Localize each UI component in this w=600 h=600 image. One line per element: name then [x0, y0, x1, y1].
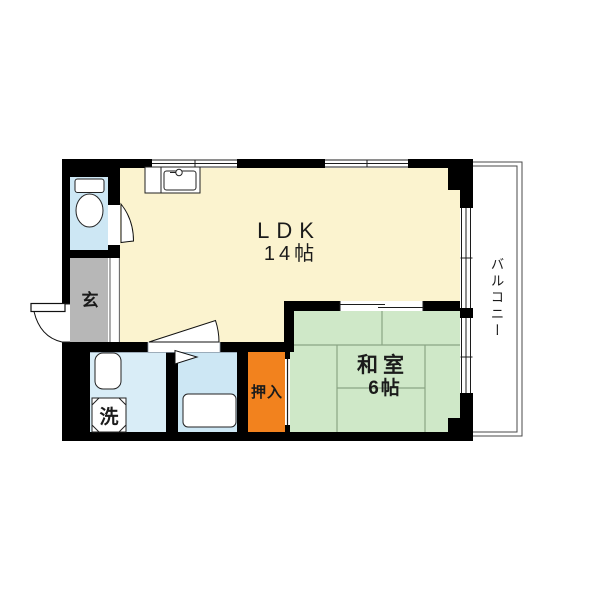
- wall: [62, 342, 90, 441]
- ldk-label: LDK: [257, 218, 321, 243]
- floor-plan-page: LDK 14帖 和室 6帖 押入 玄 洗 バルコニー: [0, 0, 600, 600]
- wall: [62, 432, 473, 441]
- wall: [284, 301, 340, 311]
- wall: [90, 342, 148, 352]
- entrance-step: [108, 258, 120, 342]
- wall: [237, 342, 248, 441]
- laundry-label: 洗: [99, 405, 118, 428]
- wall: [460, 159, 473, 208]
- washroom-opening: [148, 342, 220, 352]
- faucet-icon: [176, 169, 182, 175]
- balcony-label: バルコニー: [489, 257, 504, 340]
- floor-plan: LDK 14帖 和室 6帖 押入 玄 洗 バルコニー: [0, 0, 600, 600]
- kitchen-counter: [145, 167, 200, 193]
- entrance-label: 玄: [82, 290, 99, 310]
- window-ldk-top: [325, 159, 408, 168]
- ldk-size-label: 14帖: [264, 242, 318, 265]
- bathtub-icon: [183, 394, 236, 427]
- window-ldk-balcony: [460, 208, 473, 308]
- japanese-room-size-label: 6帖: [368, 376, 402, 399]
- closet-label: 押入: [251, 383, 283, 401]
- japanese-room-label: 和室: [357, 353, 409, 377]
- toilet-icon: [75, 179, 104, 227]
- wall: [62, 159, 70, 304]
- window-japanese-balcony: [460, 318, 473, 393]
- washbasin-icon: [95, 353, 121, 389]
- wall: [448, 418, 473, 441]
- wall: [237, 159, 325, 168]
- sliding-door-closet: [285, 352, 290, 432]
- entrance-door-leaf: [31, 304, 65, 312]
- wall: [108, 245, 120, 258]
- sliding-door-ldk-japanese: [340, 301, 423, 311]
- wall: [108, 168, 120, 205]
- wall: [220, 342, 292, 352]
